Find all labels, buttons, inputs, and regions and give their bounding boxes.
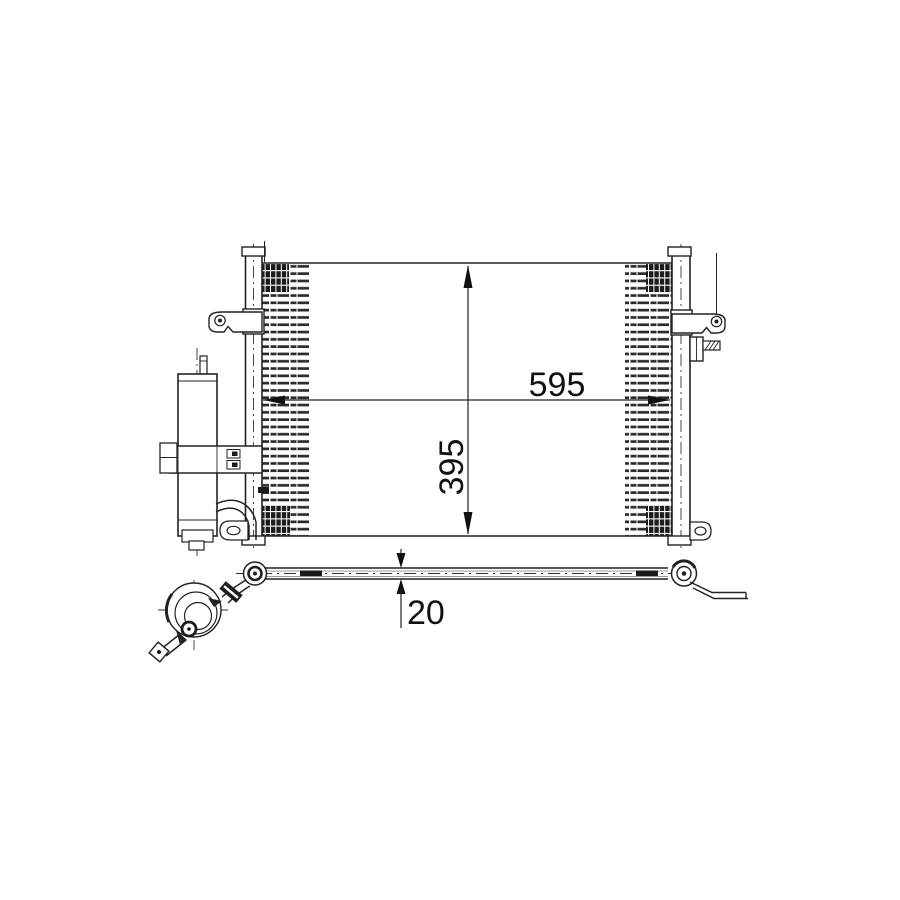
depth-dimension-label: 20	[407, 594, 445, 632]
left-mounting-bracket	[209, 309, 264, 334]
right-header-tank	[668, 244, 691, 548]
side-view-right-bracket	[690, 582, 748, 599]
side-view-drier-top	[149, 580, 250, 662]
fin-block-bottom-right	[646, 506, 672, 536]
refrigerant-fitting	[690, 337, 720, 361]
bottom-right-bracket-slot	[695, 527, 706, 535]
dimension-width: 595	[263, 366, 670, 405]
fin-edge-tick	[258, 487, 269, 493]
arrow-down	[397, 553, 406, 568]
front-view	[160, 241, 725, 556]
right-header-bottom-cap	[668, 536, 691, 545]
dimension-depth: 20	[397, 549, 445, 632]
left-header-top-cap	[242, 247, 265, 256]
side-view	[149, 561, 748, 662]
fin-block-top-right	[646, 264, 672, 293]
side-view-right-fitting	[672, 561, 749, 599]
technical-drawing: 595 395	[0, 0, 900, 900]
drier-band-clamp	[160, 443, 262, 473]
arrow-down	[464, 512, 473, 535]
drier-bottom-collar	[182, 530, 213, 542]
drier-top-pin	[200, 356, 207, 375]
condenser-diagram-svg: 595 395	[0, 0, 900, 900]
clamp-left-tab	[160, 443, 177, 473]
side-view-left-fitting	[244, 562, 267, 585]
fin-block-bottom-left	[262, 506, 290, 536]
arrow-up	[464, 265, 473, 288]
width-dimension-label: 595	[529, 366, 586, 404]
height-dimension-label: 395	[433, 439, 471, 496]
fin-block-top-left	[262, 264, 289, 293]
drier-bottom-stub	[189, 541, 204, 550]
bottom-left-bracket	[220, 521, 248, 540]
left-header-tank	[242, 244, 265, 548]
bottom-left-bracket-slot	[227, 526, 240, 534]
right-header-top-cap	[668, 247, 691, 256]
bottom-right-bracket	[690, 522, 711, 540]
side-view-bar	[236, 568, 686, 579]
